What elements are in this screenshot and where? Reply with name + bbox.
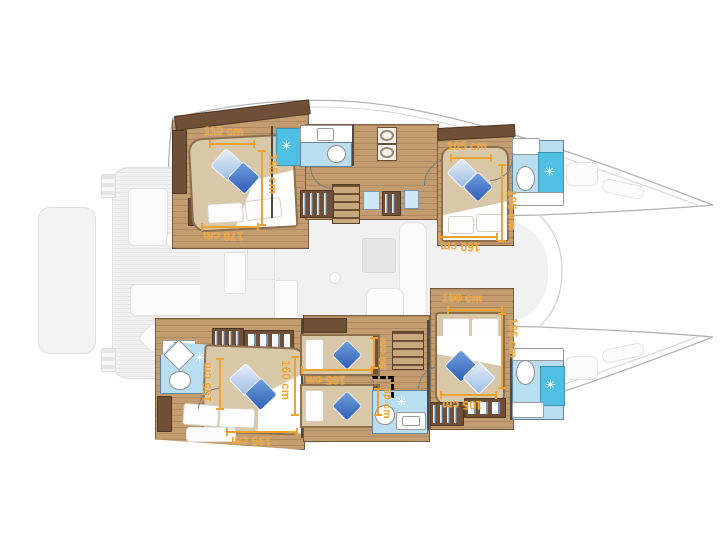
stbd-aft-cabinet: [157, 396, 172, 432]
hull-window-row: [186, 427, 236, 442]
bunk-cabin-cabinet: [303, 318, 347, 333]
companionway-stairs-port: [332, 184, 360, 224]
sink-bunk: [402, 416, 420, 426]
dim-label: 160 cm: [279, 360, 291, 400]
toilet-stbd-fore: [516, 360, 535, 385]
port-bow-locker: [566, 162, 598, 186]
bed-pillow-white: [305, 390, 324, 422]
dim-label: 195 cm: [505, 190, 517, 230]
dim-line: [438, 236, 498, 238]
dim-line: [219, 358, 221, 410]
bed-head-cushion: [442, 318, 470, 338]
bed-pillow: [331, 390, 362, 421]
dim-line: [501, 164, 503, 242]
galley-counter: [274, 280, 298, 324]
bed-pillow: [331, 339, 362, 370]
transom-steps-port: [101, 174, 116, 198]
dim-line: [301, 369, 373, 371]
galley-cabinet: [224, 252, 246, 294]
swim-platform: [38, 207, 96, 354]
toilet-port-fore: [516, 166, 535, 191]
wardrobe-hangers: [300, 190, 334, 218]
vanity-port-fore: [512, 138, 540, 155]
dim-label: 195 cm: [305, 373, 345, 385]
dim-line: [450, 157, 492, 159]
dim-line: [226, 431, 298, 433]
dim-line: [294, 356, 296, 416]
dim-label: 80 cm: [377, 338, 389, 369]
dim-label: 105 cm: [442, 398, 482, 410]
dim-line: [201, 226, 259, 228]
wardrobe-hangers: [382, 191, 401, 216]
bath-counter-stbd-fore: [512, 348, 564, 361]
dim-label: 160 cm: [440, 240, 480, 252]
washer-icon: [377, 144, 397, 161]
bed-foot-cushion: [476, 214, 502, 232]
catamaran-floor-plan: ✳ ✳ ✳: [0, 0, 720, 539]
bed-foot-cushion: [219, 407, 256, 428]
wall: [427, 320, 429, 430]
wall: [352, 124, 354, 166]
companionway-stairs-stbd: [392, 331, 424, 370]
dim-line: [377, 388, 379, 416]
dim-label: 80 cm: [381, 388, 393, 419]
dim-label: 105 cm: [202, 362, 214, 402]
dim-line: [440, 394, 497, 396]
bed-foot-cushion: [448, 216, 474, 234]
compass-rose-icon: ✳: [281, 139, 292, 152]
dim-label: 195 cm: [266, 154, 278, 194]
cockpit-seat: [128, 188, 168, 246]
salon-detail: [329, 272, 341, 284]
salon-table: [362, 238, 396, 273]
port-aft-cabin-side-cabinet: [172, 130, 187, 194]
wall: [510, 352, 512, 420]
dim-label: 160 cm: [442, 293, 482, 305]
toilet-stbd-aft: [169, 371, 191, 390]
dim-label: 195 cm: [506, 318, 518, 358]
vanity-stbd-fore: [512, 402, 544, 418]
lower-single-bed: [300, 384, 380, 428]
dim-label: 110 cm: [204, 126, 244, 138]
dim-line: [501, 313, 503, 389]
hull-window: [363, 191, 380, 210]
starboard-bow-locker: [566, 356, 598, 380]
bed-foot-cushion: [207, 202, 244, 224]
compass-rose-icon: ✳: [544, 165, 555, 178]
compass-rose-icon: ✳: [545, 378, 556, 391]
bed-pillow-white: [305, 339, 324, 370]
dim-line: [373, 337, 375, 369]
dim-label: 105 cm: [447, 141, 487, 153]
hull-window: [404, 190, 419, 209]
compass-rose-icon: ✳: [396, 395, 407, 408]
dim-line: [447, 309, 503, 311]
bath-counter-port-fore: [512, 192, 564, 206]
transom-steps-starboard: [101, 348, 116, 372]
dim-line: [261, 150, 263, 226]
washer-icon: [377, 127, 397, 144]
dim-label: 170 cm: [203, 229, 243, 241]
toilet-port-aft: [327, 145, 346, 163]
dim-label: 195 cm: [231, 434, 271, 446]
dim-line: [209, 143, 255, 145]
bed-head-cushion: [471, 318, 499, 338]
sink-port-aft: [317, 128, 334, 141]
